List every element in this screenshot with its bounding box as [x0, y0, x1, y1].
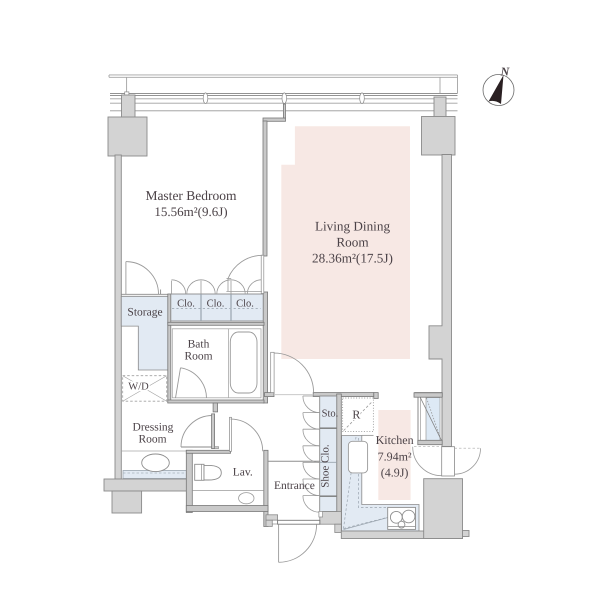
svg-text:(4.9J): (4.9J)	[381, 466, 409, 480]
svg-text:7.94m²: 7.94m²	[378, 450, 412, 464]
svg-text:Clo.: Clo.	[177, 299, 195, 310]
svg-text:Dressing: Dressing	[133, 422, 174, 434]
svg-text:Living Dining: Living Dining	[315, 219, 391, 234]
svg-text:Sto.: Sto.	[322, 409, 339, 420]
svg-text:Clo.: Clo.	[207, 299, 225, 310]
svg-text:Room: Room	[184, 351, 212, 363]
svg-text:28.36m²(17.5J): 28.36m²(17.5J)	[312, 251, 393, 266]
svg-text:15.56m²(9.6J): 15.56m²(9.6J)	[154, 204, 227, 219]
svg-text:Entrance: Entrance	[274, 480, 315, 492]
svg-text:Lav.: Lav.	[233, 466, 253, 478]
svg-text:Bath: Bath	[188, 339, 210, 351]
svg-text:Room: Room	[138, 434, 166, 446]
svg-text:Storage: Storage	[127, 307, 162, 319]
svg-text:Clo.: Clo.	[236, 299, 254, 310]
svg-text:W/D: W/D	[128, 382, 149, 393]
svg-text:R: R	[352, 407, 360, 421]
svg-text:Room: Room	[336, 235, 369, 250]
svg-text:N: N	[500, 65, 511, 79]
svg-text:Master Bedroom: Master Bedroom	[145, 188, 237, 203]
svg-text:Shoe Clo.: Shoe Clo.	[320, 444, 332, 488]
svg-text:Kitchen: Kitchen	[376, 433, 414, 447]
